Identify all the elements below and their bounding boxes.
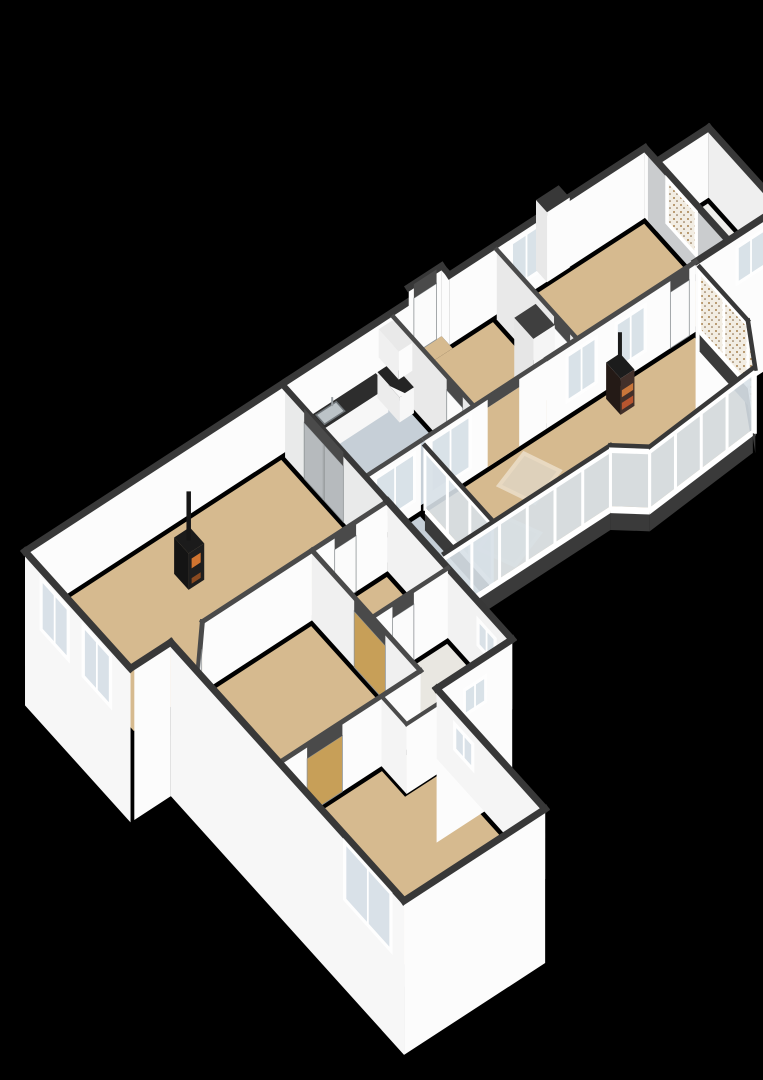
- dining-conservatory-chamfer-glazing-cap: [610, 445, 649, 446]
- floorplan-stage: [0, 0, 763, 1080]
- dining-conservatory-chamfer-glazing-slab: [610, 512, 649, 532]
- dining-conservatory-chamfer-glazing-glass: [610, 449, 649, 508]
- exterior-wall-living-se: [134, 642, 171, 820]
- wall-chimney-side: [536, 200, 547, 282]
- floorplan-3d-view[interactable]: [0, 0, 763, 1080]
- dining-conservatory-chamfer-glazing-sill: [610, 506, 649, 514]
- wall-chimney-front: [547, 198, 570, 283]
